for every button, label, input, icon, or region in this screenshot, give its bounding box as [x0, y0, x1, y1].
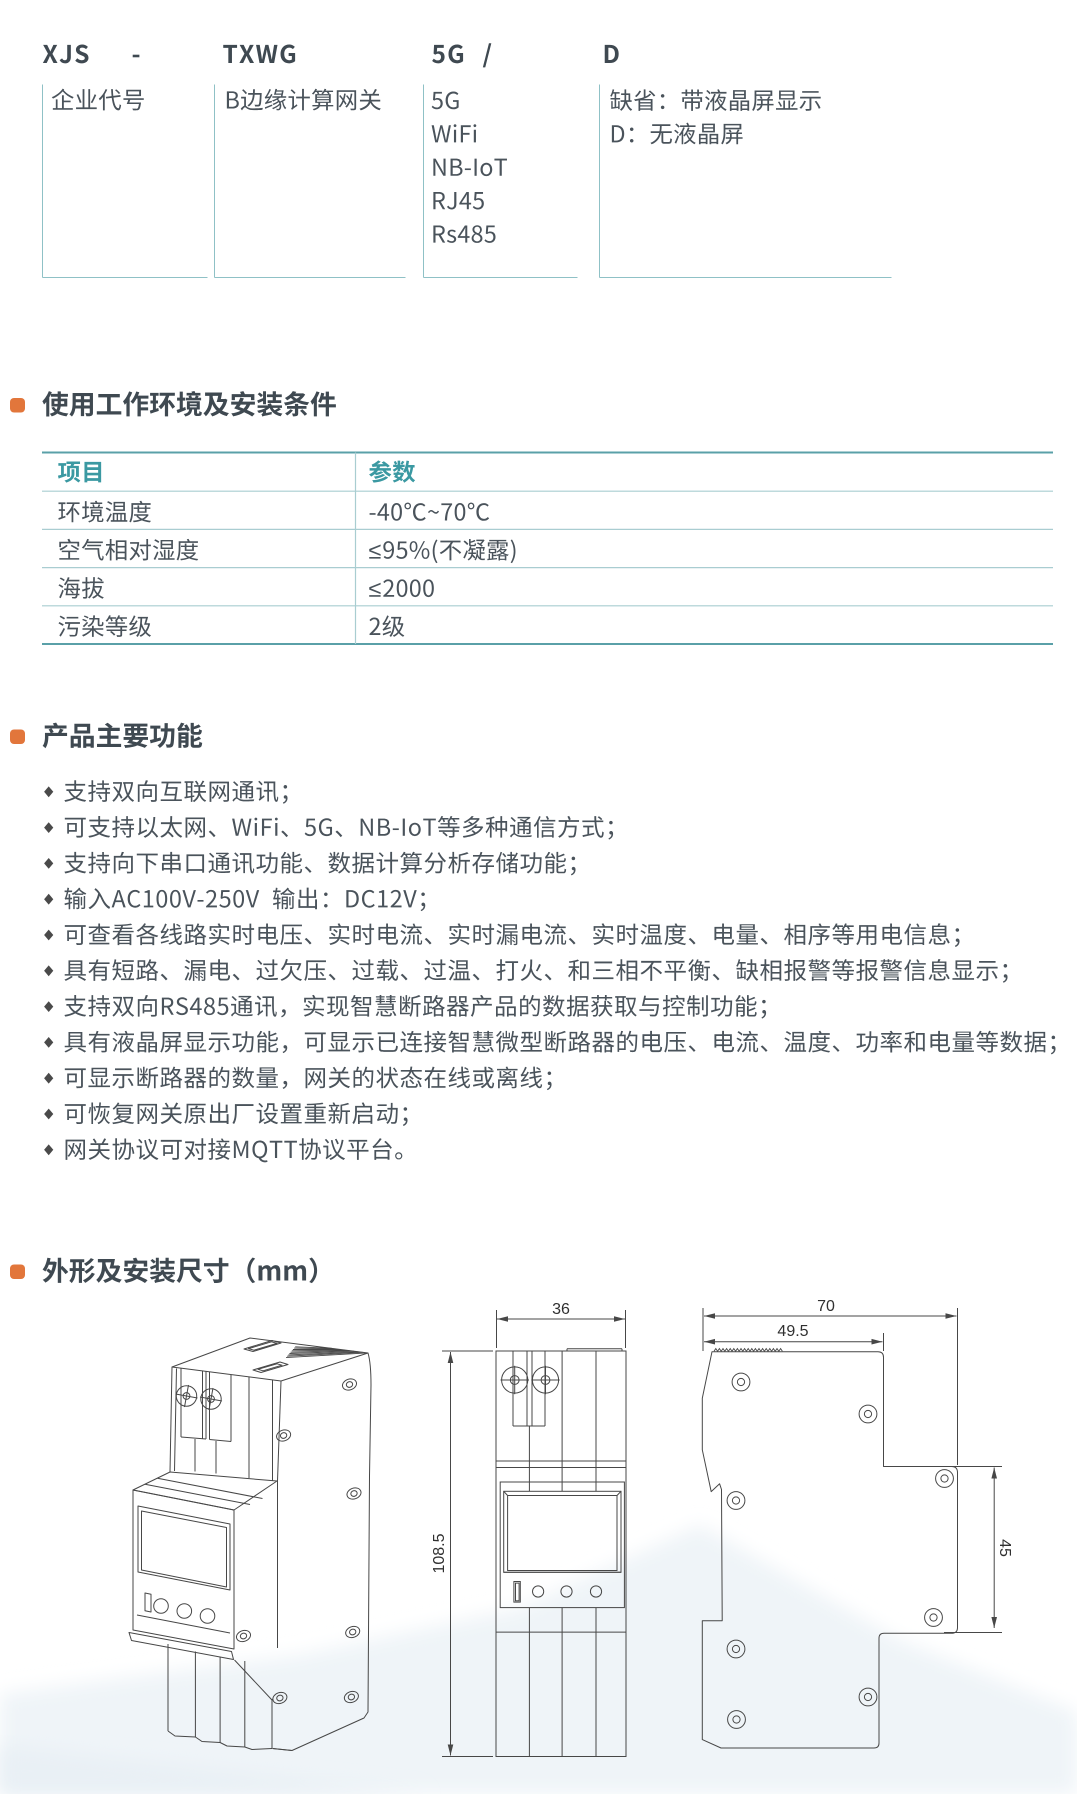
svg-text:45: 45 [996, 1539, 1013, 1557]
svg-text:49.5: 49.5 [777, 1323, 808, 1340]
svg-text:108.5: 108.5 [431, 1533, 448, 1573]
svg-text:70: 70 [817, 1298, 835, 1315]
svg-text:36: 36 [552, 1301, 570, 1318]
